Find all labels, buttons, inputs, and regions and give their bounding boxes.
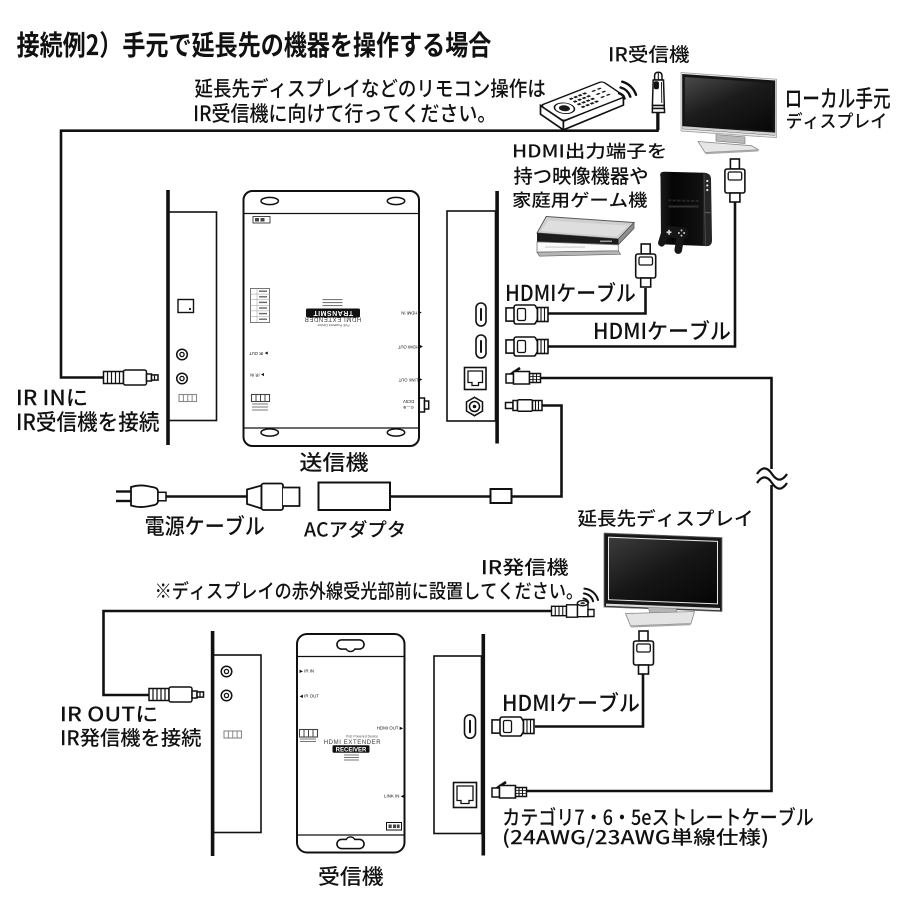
svg-text:RECEIVER: RECEIVER [336, 747, 367, 753]
svg-text:▶ IR OUT: ▶ IR OUT [249, 351, 268, 356]
svg-text:◀ LINK OUT: ◀ LINK OUT [398, 377, 422, 382]
svg-text:TRANSMIT: TRANSMIT [313, 309, 353, 316]
svg-text:PoE Powered Device: PoE Powered Device [346, 735, 378, 739]
svg-text:HDMI EXTENDER: HDMI EXTENDER [324, 740, 382, 746]
svg-text:HDMI OUT ▶: HDMI OUT ▶ [377, 726, 404, 731]
svg-text:DC5V: DC5V [403, 399, 414, 404]
svg-text:◀ HDMI IN: ◀ HDMI IN [401, 311, 421, 316]
svg-text:▶ IR IN: ▶ IR IN [300, 669, 315, 674]
svg-text:PoE Powered Device: PoE Powered Device [317, 323, 349, 327]
svg-text:HDMI EXTENDER: HDMI EXTENDER [304, 316, 362, 322]
svg-text:◀ HDMI OUT: ◀ HDMI OUT [398, 344, 424, 349]
svg-text:⊙—⊕: ⊙—⊕ [403, 405, 414, 410]
svg-text:◀ IR OUT: ◀ IR OUT [300, 694, 320, 699]
svg-text:▶ IR IN: ▶ IR IN [250, 373, 264, 378]
svg-text:LINK IN ◀: LINK IN ◀ [384, 794, 405, 799]
